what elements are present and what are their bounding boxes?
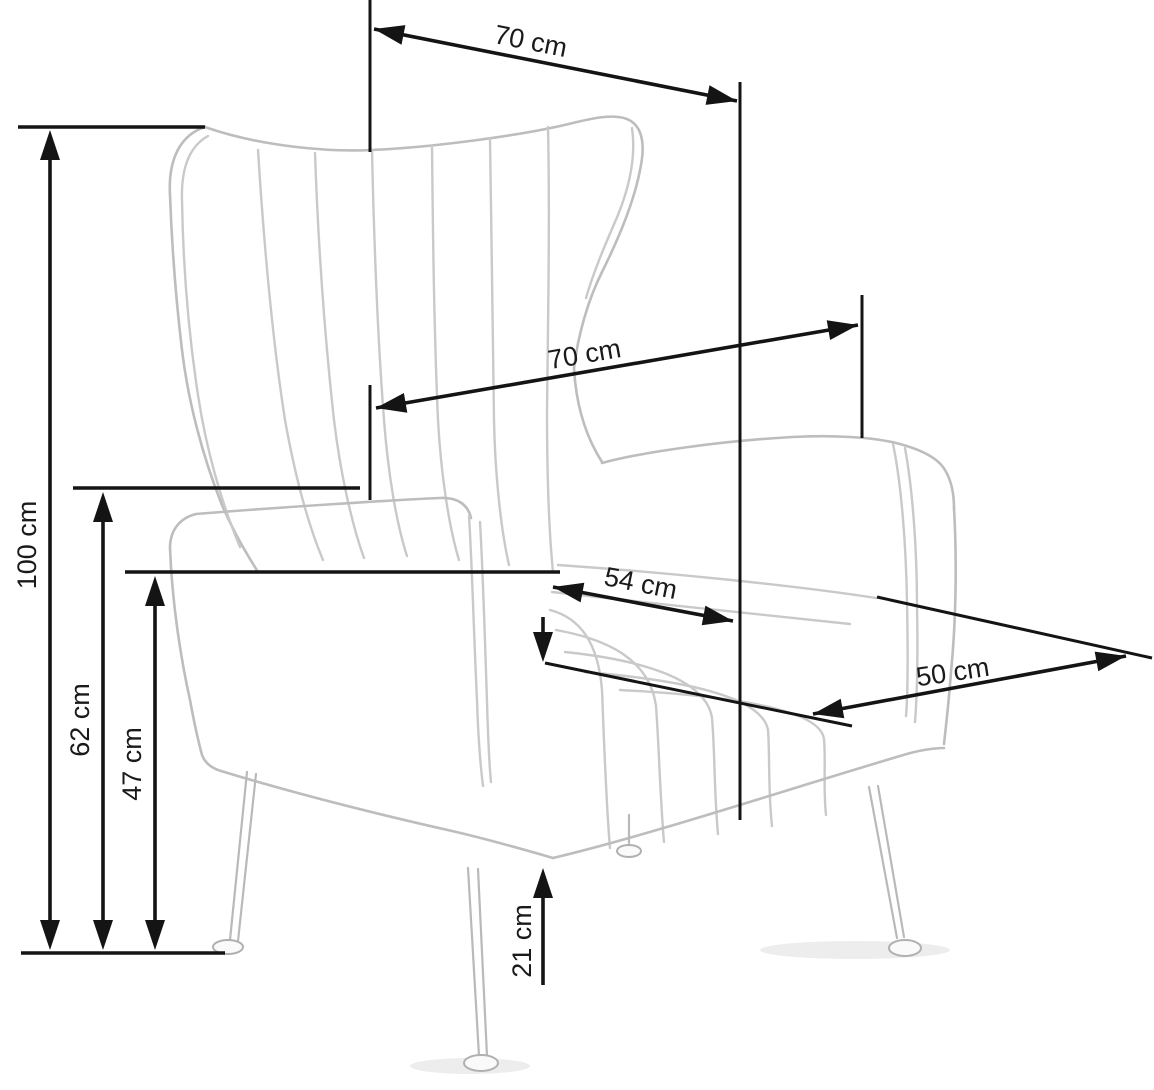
arrowhead bbox=[533, 868, 553, 898]
back-channel-seam bbox=[315, 153, 364, 558]
seat-channel-curve bbox=[550, 610, 610, 848]
left-armrest-top bbox=[170, 498, 471, 548]
dimension-label-armrest-height: 62 cm bbox=[65, 683, 95, 757]
front-left-leg bbox=[213, 772, 256, 954]
dimension-diagram: 70 cm 70 cm 100 cm 62 cm 47 bbox=[0, 0, 1154, 1090]
arrowhead bbox=[40, 130, 60, 160]
dimension-overall-height: 100 cm bbox=[12, 130, 60, 950]
dimension-label-seat-height: 47 cm bbox=[117, 727, 147, 801]
back-left-foot bbox=[617, 845, 641, 857]
seat-channel-curve bbox=[556, 630, 664, 842]
arrowhead bbox=[40, 920, 60, 950]
dimension-leg-height: 21 cm bbox=[507, 868, 553, 985]
back-right-foot bbox=[889, 940, 921, 956]
dimension-top-depth: 70 cm bbox=[374, 19, 737, 105]
left-armrest-bottom-edge bbox=[221, 771, 553, 858]
dimension-label-leg-height: 21 cm bbox=[507, 904, 537, 978]
back-right-leg bbox=[869, 786, 921, 956]
dimension-seat-width: 54 cm bbox=[553, 561, 733, 625]
dimension-back-width: 70 cm bbox=[376, 320, 858, 413]
dimension-lines: 70 cm 70 cm 100 cm 62 cm 47 bbox=[12, 0, 1152, 985]
right-wing-inner bbox=[586, 128, 633, 298]
seat-channel-curve bbox=[620, 690, 826, 815]
chair-sketch bbox=[170, 117, 956, 1074]
arrowhead bbox=[145, 920, 165, 950]
right-armrest-piping bbox=[893, 444, 908, 716]
front-right-foot bbox=[464, 1055, 498, 1071]
arrowhead bbox=[702, 606, 733, 626]
diagram-canvas: 70 cm 70 cm 100 cm 62 cm 47 bbox=[0, 0, 1154, 1090]
seat-bottom-rail bbox=[553, 748, 944, 858]
seat-depth-extension-front bbox=[545, 663, 852, 726]
arrowhead bbox=[813, 699, 844, 719]
front-right-leg bbox=[464, 868, 498, 1071]
seat-channel-curve bbox=[565, 652, 718, 834]
left-armrest-piping bbox=[480, 522, 491, 782]
dimension-seat-depth: 50 cm bbox=[813, 652, 1126, 719]
arrowhead bbox=[376, 393, 407, 413]
back-channel-seam bbox=[490, 138, 509, 565]
back-channel-seam bbox=[372, 151, 407, 556]
dimension-seat-height: 47 cm bbox=[117, 576, 165, 950]
left-armrest-left-edge bbox=[170, 548, 221, 771]
arrowhead bbox=[1095, 652, 1126, 672]
arrowhead bbox=[827, 320, 858, 340]
arrowhead bbox=[93, 492, 113, 522]
arrowhead bbox=[533, 632, 553, 662]
arrowhead bbox=[706, 85, 737, 105]
arrowhead bbox=[374, 25, 405, 45]
arrowhead bbox=[93, 920, 113, 950]
backrest-top-edge bbox=[205, 117, 618, 151]
arrowhead bbox=[145, 576, 165, 606]
seat-surface-pointer bbox=[533, 617, 553, 662]
dimension-armrest-height: 62 cm bbox=[65, 492, 113, 950]
back-channel-seam bbox=[258, 150, 323, 560]
backrest-left-edge-inner bbox=[182, 136, 240, 547]
right-armrest-right-edge bbox=[944, 508, 956, 744]
dimension-label-overall-height: 100 cm bbox=[12, 501, 42, 590]
dimension-label-seat-depth: 50 cm bbox=[914, 652, 991, 693]
